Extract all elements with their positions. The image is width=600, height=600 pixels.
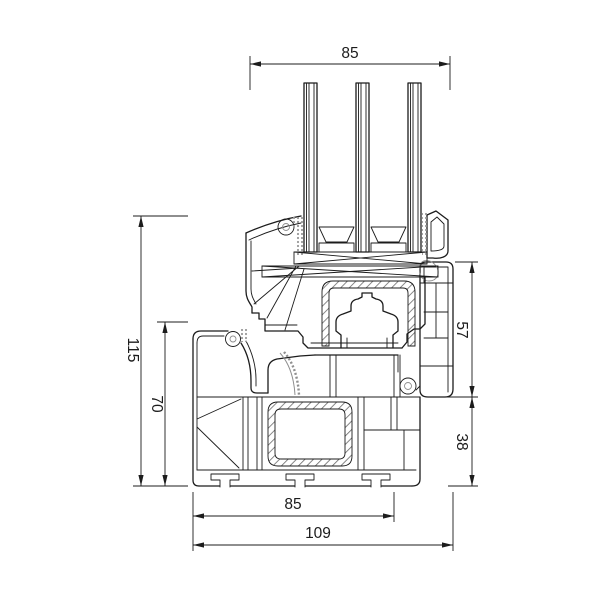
glazing-gasket-inner	[422, 211, 429, 255]
spacer-bar	[319, 227, 354, 242]
arrowhead	[469, 397, 474, 408]
arrowhead	[193, 542, 204, 547]
glazing-bridge	[262, 266, 438, 277]
glass-pane	[304, 83, 317, 252]
frame-gasket-curl	[400, 378, 416, 394]
glazing-unit	[262, 83, 438, 277]
dimension-left-70: 70	[148, 322, 188, 486]
dimension-label-bottom-109: 109	[305, 525, 331, 542]
dimension-right-38: 38	[448, 397, 478, 486]
spacer-bar	[371, 227, 406, 242]
arrowhead	[138, 216, 143, 227]
dimension-label-right-38: 38	[453, 433, 470, 450]
arrowhead	[469, 475, 474, 486]
arrowhead	[442, 542, 453, 547]
arrowhead	[138, 475, 143, 486]
technical-drawing-page: 85 115 70 57 38	[0, 0, 600, 600]
dimension-label-left-115: 115	[124, 338, 141, 363]
setting-block	[294, 252, 427, 264]
dimension-label-top-85: 85	[341, 45, 358, 62]
arrowhead	[162, 475, 167, 486]
arrowhead	[162, 322, 167, 333]
desiccant-strip	[371, 243, 406, 252]
desiccant-strip	[319, 243, 354, 252]
window-profile-cross-section: 85 115 70 57 38	[0, 0, 600, 600]
frame-gasket-stipple	[239, 329, 248, 342]
glass-pane	[356, 83, 369, 252]
dimension-bottom-109: 109	[193, 492, 453, 551]
arrowhead	[250, 61, 261, 66]
frame-steel-reinforcement	[268, 402, 352, 466]
dimension-bottom-85: 85	[193, 492, 394, 551]
frame-gasket-curl	[226, 332, 241, 347]
dimension-label-left-70: 70	[148, 395, 165, 413]
glazing-gasket-outer	[296, 215, 303, 255]
arrowhead	[469, 386, 474, 397]
arrowhead	[439, 61, 450, 66]
sash-steel-reinforcement	[322, 281, 415, 346]
glass-pane	[408, 83, 421, 252]
dimension-label-bottom-85: 85	[284, 496, 301, 513]
arrowhead	[193, 513, 204, 518]
sash-gasket-curl	[278, 219, 294, 235]
arrowhead	[469, 262, 474, 273]
arrowhead	[383, 513, 394, 518]
hardware-groove	[336, 293, 398, 348]
dimension-label-right-57: 57	[453, 321, 470, 338]
dimension-left-115: 115	[124, 216, 188, 486]
